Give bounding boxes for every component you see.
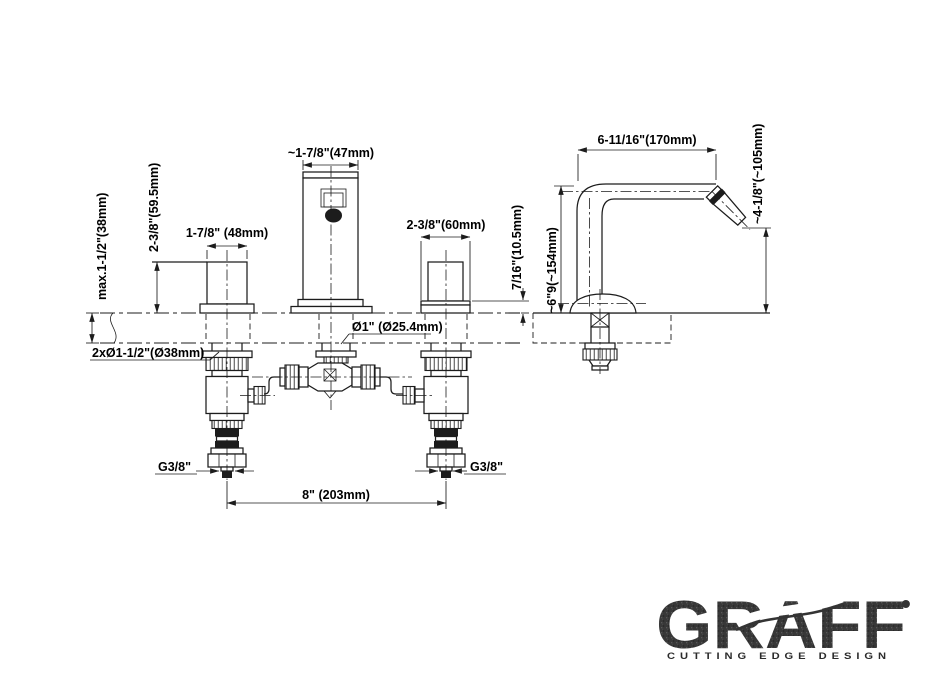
side-handle (570, 294, 636, 370)
label-supply-thread-right: G3/8" (470, 460, 503, 474)
break-line (110, 313, 116, 343)
dim-right-handle-width: 2-3/8"(60mm) (407, 218, 486, 232)
graff-logo: GRAFF • CUTTING EDGE DESIGN (656, 587, 911, 663)
technical-drawing: max.1-1/2"(38mm) 2-3/8"(59.5mm) 1-7/8" (… (0, 0, 936, 690)
spout-front (291, 172, 372, 313)
side-countertop (533, 313, 770, 343)
dim-spout-reach: 6-11/16"(170mm) (597, 133, 696, 147)
left-flex-hose (264, 377, 280, 394)
right-flex-hose (380, 377, 403, 394)
dim-outlet-height: ~4-1/8"(~105mm) (751, 124, 765, 224)
dim-handle-centers: 8" (203mm) (302, 488, 370, 502)
dim-handle-height: 2-3/8"(59.5mm) (147, 163, 161, 252)
left-handle-front (152, 262, 254, 313)
dim-left-handle-width: 1-7/8" (48mm) (186, 226, 268, 240)
faucet-spec-sheet: max.1-1/2"(38mm) 2-3/8"(59.5mm) 1-7/8" (… (0, 0, 936, 690)
dim-base-plate-height: 7/16"(10.5mm) (510, 205, 524, 290)
dim-handle-holes: 2xØ1-1/2"(Ø38mm) (92, 346, 204, 360)
dim-deck-thickness: max.1-1/2"(38mm) (95, 193, 109, 300)
dim-spout-width: ~1-7/8"(47mm) (288, 146, 374, 160)
center-tee-assembly (264, 343, 403, 398)
left-valve-assembly (202, 343, 265, 478)
front-view: max.1-1/2"(38mm) 2-3/8"(59.5mm) 1-7/8" (… (86, 146, 529, 509)
dim-spout-hole: Ø1" (Ø25.4mm) (352, 320, 443, 334)
countertop-section (100, 313, 520, 343)
right-handle-side-profile (421, 262, 470, 313)
right-valve-assembly (403, 343, 471, 478)
logo-trademark-dot: • (901, 588, 911, 619)
label-supply-thread-left: G3/8" (158, 460, 191, 474)
brand-tagline: CUTTING EDGE DESIGN (667, 651, 891, 661)
dim-spout-height: ~6"9(~154mm) (545, 227, 559, 313)
aerator-outlet (325, 209, 342, 223)
side-view: 6-11/16"(170mm) ~6"9(~154mm) ~4-1/8"(~10… (533, 124, 771, 374)
